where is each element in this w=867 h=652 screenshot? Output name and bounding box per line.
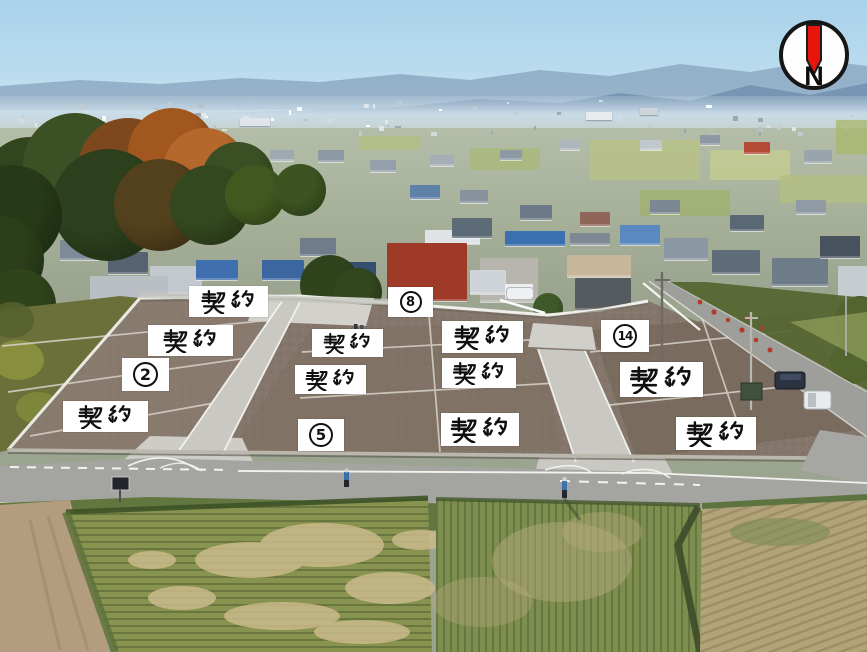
parked-van-dark <box>775 372 805 389</box>
lot-number-label: 14 <box>601 320 649 352</box>
sold-label <box>63 401 148 432</box>
sold-label <box>442 358 516 388</box>
sold-label <box>441 413 519 446</box>
parked-van-white <box>804 391 831 409</box>
turning-pad-right <box>528 323 596 350</box>
sold-label <box>676 417 756 450</box>
sold-label <box>620 362 703 397</box>
sold-label <box>148 325 233 356</box>
sold-label <box>312 329 383 357</box>
site-shed <box>741 383 762 400</box>
compass-n-label: N <box>804 63 824 90</box>
lot-number-label: 5 <box>298 419 344 451</box>
compass-north-indicator: N <box>779 20 849 90</box>
rice-field-left <box>66 498 448 652</box>
field-right <box>700 497 867 652</box>
field-middle <box>432 499 707 652</box>
sold-label <box>295 365 366 394</box>
town <box>0 128 867 293</box>
lot-number-label: 8 <box>388 287 433 317</box>
sold-label <box>442 321 523 353</box>
lot-number-label: 2 <box>122 358 169 391</box>
person <box>344 469 349 488</box>
development-site <box>0 270 867 652</box>
sold-label <box>189 286 268 317</box>
aerial-photo: 25814 N <box>0 0 867 652</box>
